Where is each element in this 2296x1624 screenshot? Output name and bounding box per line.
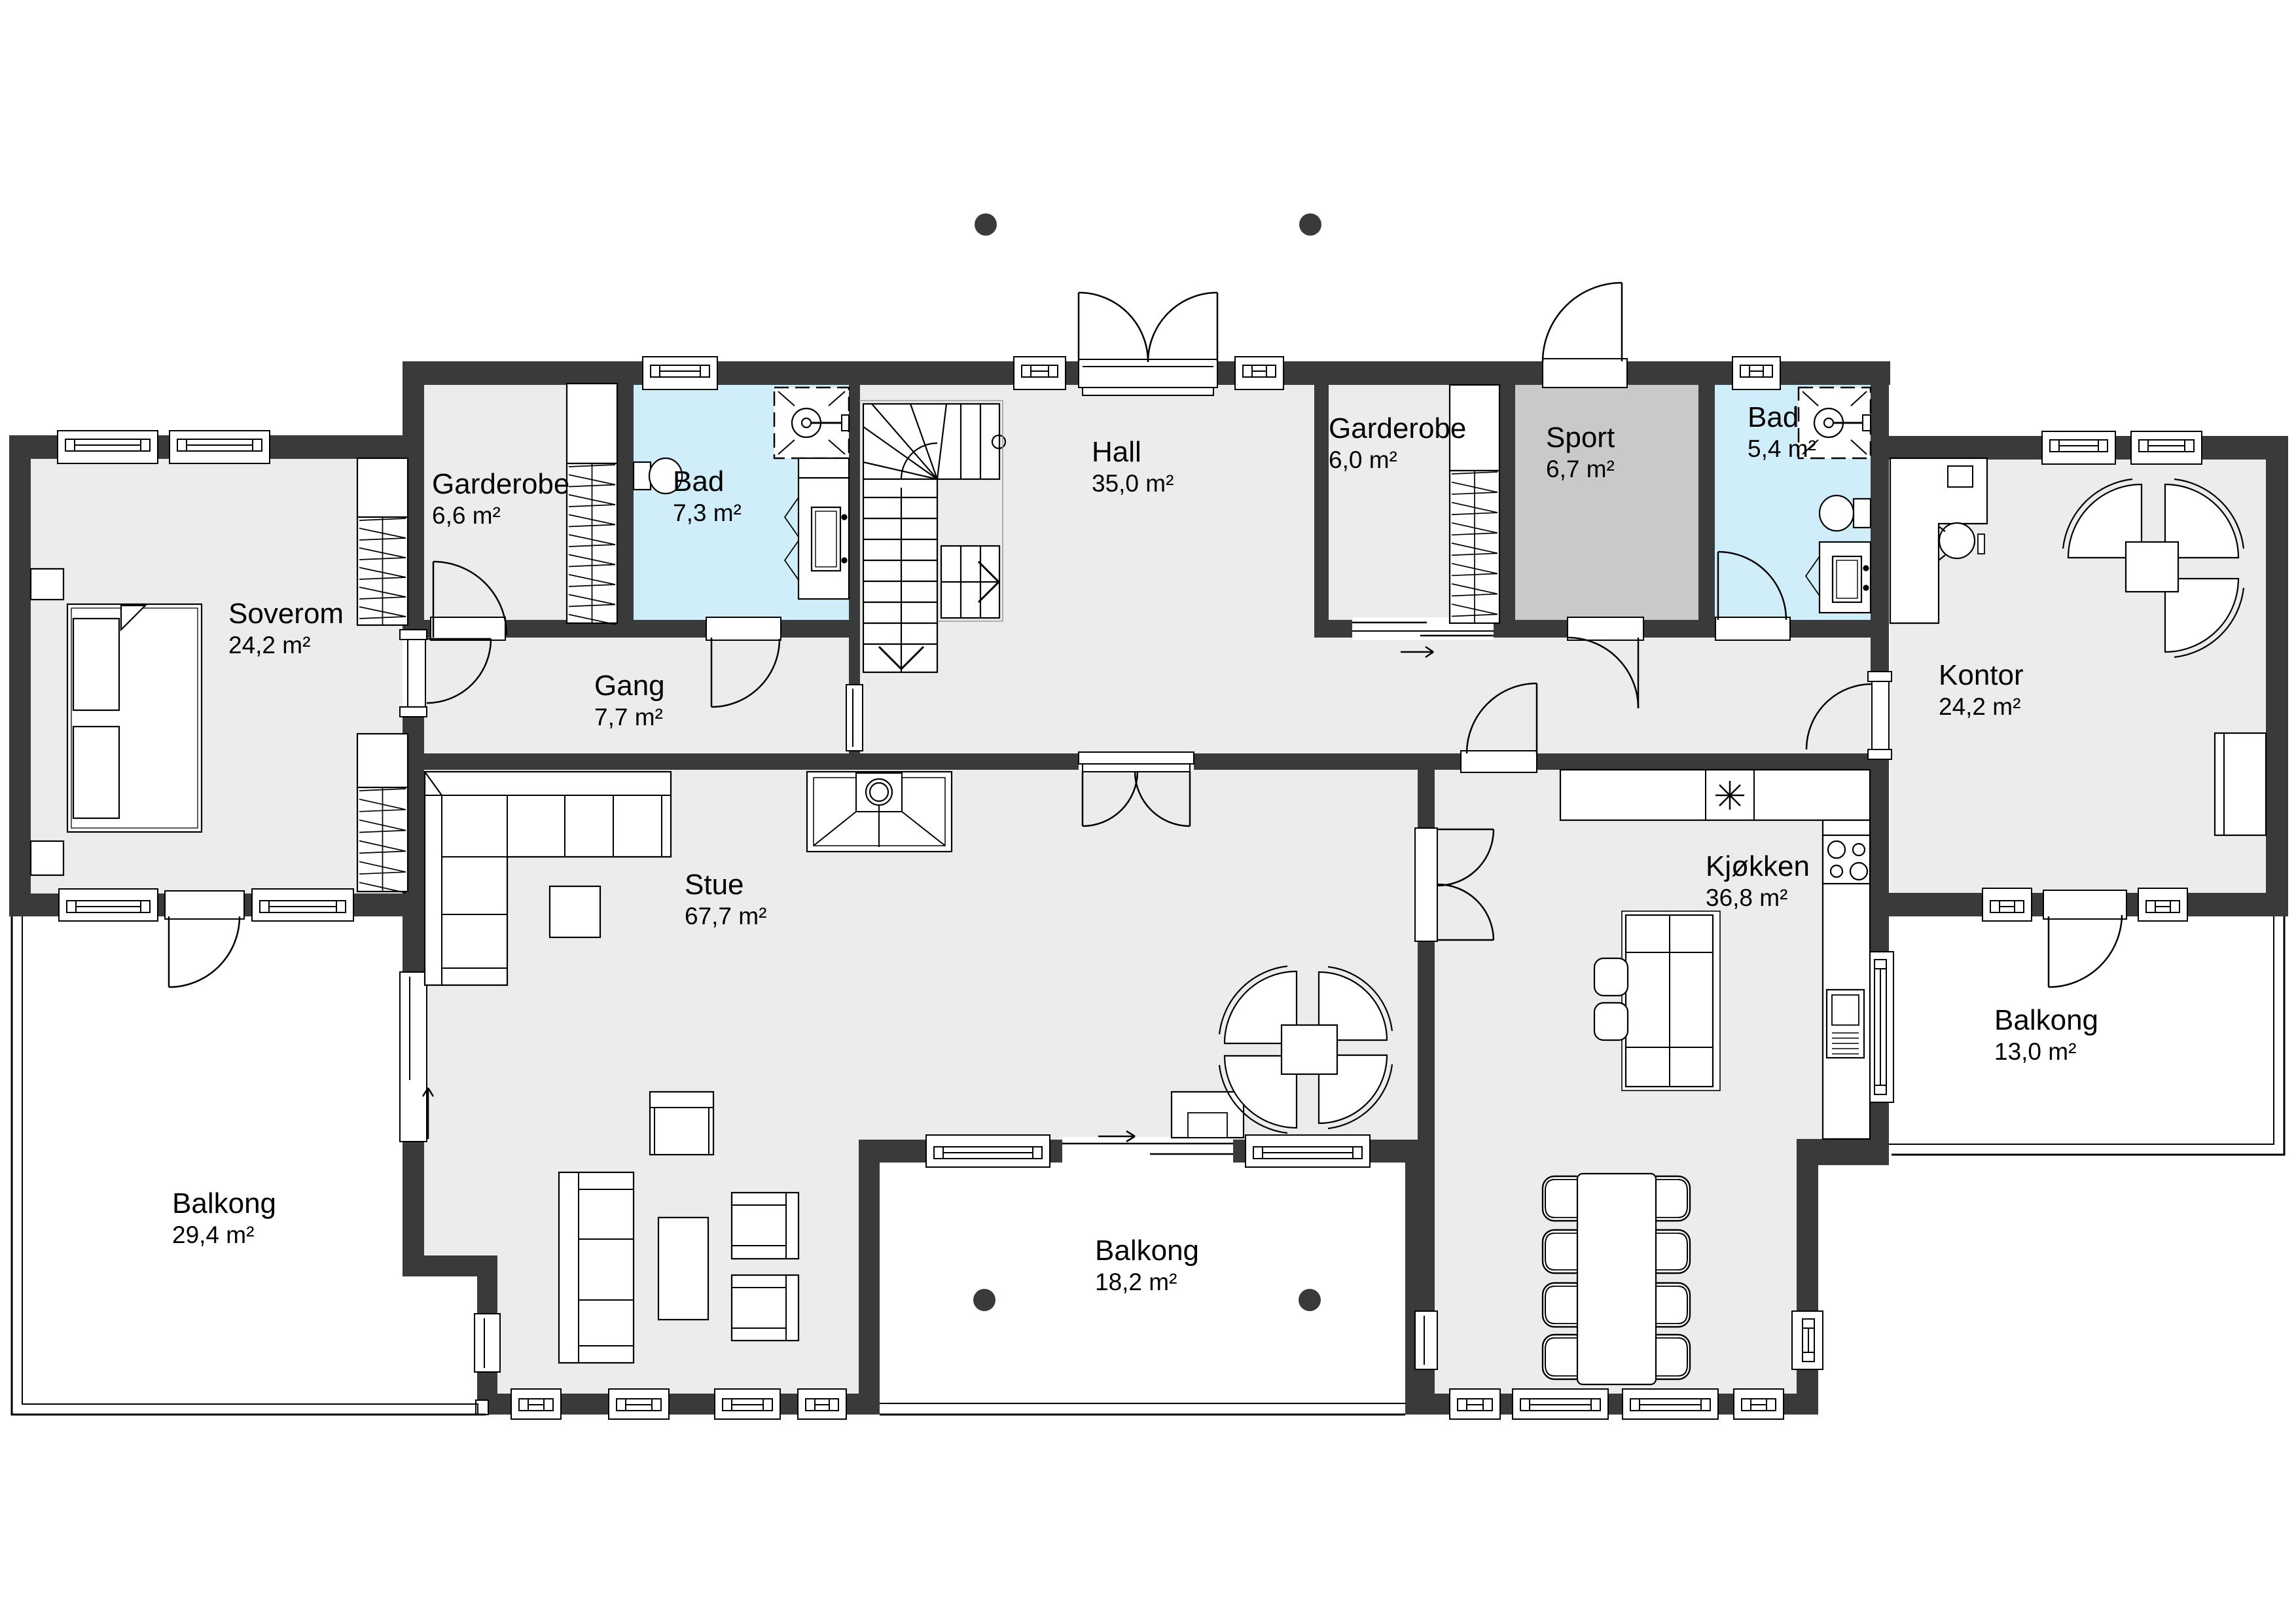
svg-text:6,0 m²: 6,0 m² — [1329, 446, 1397, 473]
svg-text:6,6 m²: 6,6 m² — [432, 502, 501, 529]
svg-text:Kjøkken: Kjøkken — [1706, 850, 1810, 882]
svg-text:Soverom: Soverom — [228, 598, 344, 630]
svg-text:24,2 m²: 24,2 m² — [228, 632, 310, 659]
svg-text:Garderobe: Garderobe — [1329, 412, 1466, 444]
svg-text:Balkong: Balkong — [172, 1187, 276, 1219]
svg-text:29,4 m²: 29,4 m² — [172, 1221, 254, 1248]
svg-text:7,3 m²: 7,3 m² — [673, 499, 742, 526]
svg-text:Balkong: Balkong — [1095, 1235, 1199, 1267]
svg-text:Kontor: Kontor — [1939, 659, 2024, 691]
svg-text:Gang: Gang — [594, 670, 665, 702]
svg-text:24,2 m²: 24,2 m² — [1939, 693, 2020, 720]
svg-text:35,0 m²: 35,0 m² — [1092, 470, 1174, 497]
svg-text:18,2 m²: 18,2 m² — [1095, 1269, 1177, 1295]
svg-text:Balkong: Balkong — [1994, 1004, 2098, 1036]
svg-text:Bad: Bad — [1748, 401, 1799, 433]
svg-text:Garderobe: Garderobe — [432, 468, 569, 500]
svg-text:Stue: Stue — [685, 869, 744, 901]
svg-text:Bad: Bad — [673, 465, 724, 497]
svg-text:Hall: Hall — [1092, 436, 1141, 468]
svg-text:67,7 m²: 67,7 m² — [685, 903, 766, 929]
svg-text:6,7 m²: 6,7 m² — [1546, 456, 1615, 482]
svg-text:36,8 m²: 36,8 m² — [1706, 884, 1787, 911]
svg-text:13,0 m²: 13,0 m² — [1994, 1038, 2076, 1065]
svg-text:7,7 m²: 7,7 m² — [594, 704, 663, 731]
svg-text:5,4 m²: 5,4 m² — [1748, 435, 1816, 462]
svg-text:Sport: Sport — [1546, 422, 1615, 454]
